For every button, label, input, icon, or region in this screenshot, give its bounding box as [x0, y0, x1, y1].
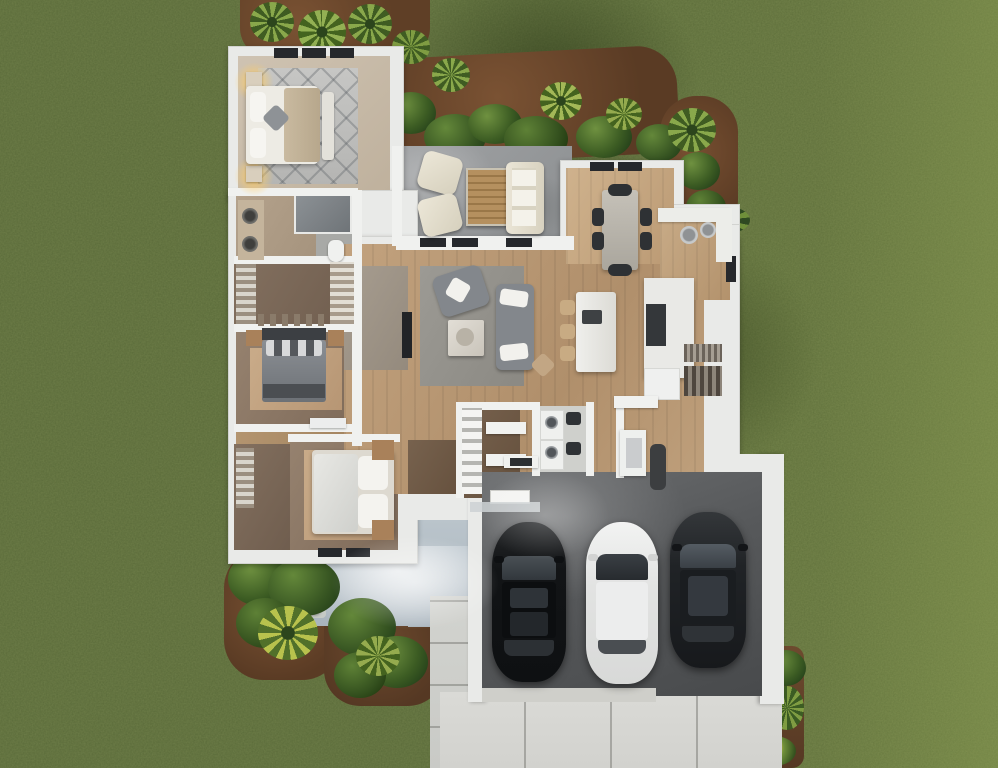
closet-rack: [236, 448, 254, 508]
window: [618, 162, 642, 171]
shelf: [486, 422, 526, 434]
window: [452, 238, 478, 247]
window: [420, 238, 446, 247]
car-gray-windshield: [680, 544, 736, 568]
dining-chair: [592, 232, 604, 250]
driveway: [440, 692, 782, 768]
washer-drum: [545, 416, 558, 429]
wine-rack: [684, 366, 722, 396]
mudroom-bench-pad: [626, 438, 642, 468]
car-mirror: [494, 556, 504, 563]
bedroom2-pillows: [266, 340, 322, 356]
nightstand: [372, 440, 394, 460]
bedroom2-headboard: [262, 328, 326, 340]
palm-plant: [606, 98, 642, 130]
window: [302, 48, 326, 58]
car-gray-rear-glass: [682, 626, 734, 642]
pillow: [358, 456, 388, 490]
mudroom-cabinet: [614, 396, 658, 408]
toilet: [328, 240, 344, 262]
bath-sink: [242, 208, 258, 224]
desk: [310, 418, 346, 428]
linen-shelves: [462, 408, 482, 494]
master-duvet: [284, 88, 320, 162]
laundry-basket: [566, 412, 581, 425]
island-sink: [582, 310, 602, 324]
car-white-rear-glass: [598, 640, 646, 654]
palm-plant: [250, 2, 294, 42]
floor-plan-rendering: [0, 0, 998, 768]
kitchen-island: [576, 292, 616, 372]
bar-stool: [560, 300, 575, 315]
window: [590, 162, 614, 171]
patio-wall-west: [392, 146, 402, 246]
pantry-bowl: [700, 222, 716, 238]
laundry-basket: [566, 442, 581, 455]
grass-light-right: [820, 0, 998, 768]
bath-sink: [242, 236, 258, 252]
palm-plant: [668, 108, 716, 152]
sunlight-haze: [330, 535, 500, 630]
car-mirror: [588, 554, 598, 561]
dining-chair: [640, 208, 652, 226]
shower: [294, 190, 352, 234]
water-heater: [650, 444, 666, 490]
window: [506, 238, 532, 247]
pantry-counter: [716, 208, 732, 262]
palm-plant: [432, 58, 470, 92]
shoe-shelf: [258, 314, 326, 326]
sunlight-haze: [480, 470, 610, 560]
nightstand: [328, 330, 344, 346]
palm-plant: [540, 82, 582, 120]
dining-chair: [640, 232, 652, 250]
nightstand: [246, 330, 262, 346]
car-mirror: [648, 554, 658, 561]
dining-table: [602, 190, 638, 270]
sofa-cushion: [499, 343, 529, 362]
garage-wall-right: [760, 454, 784, 704]
car-gray-sunroof: [688, 576, 728, 616]
tv-panel: [402, 312, 412, 358]
pillow: [250, 128, 266, 158]
window: [318, 548, 342, 557]
range-cooktop: [646, 304, 666, 346]
car-mirror: [738, 544, 748, 551]
bar-stool: [560, 346, 575, 361]
dining-chair: [592, 208, 604, 226]
garage-door-threshold: [482, 688, 656, 702]
closet-rack: [330, 262, 354, 324]
wall-partition: [586, 402, 594, 476]
window: [330, 48, 354, 58]
car-black-sunroof: [510, 588, 548, 608]
car-black-sunroof: [510, 612, 548, 636]
spice-rack: [684, 344, 722, 362]
pantry-bowl: [680, 226, 698, 244]
bedroom3-duvet: [314, 454, 358, 532]
car-mirror: [672, 544, 682, 551]
patio-sofa-cushions: [512, 168, 536, 226]
dining-chair: [608, 264, 632, 276]
window: [274, 48, 298, 58]
bar-stool: [560, 324, 575, 339]
entry-bench-pad: [510, 458, 532, 466]
bed-bench: [322, 92, 334, 160]
car-white-windshield: [596, 554, 648, 580]
car-white-roof: [596, 582, 648, 640]
dryer-drum: [545, 446, 558, 459]
closet-rack: [236, 264, 256, 324]
nightstand: [246, 166, 262, 182]
palm-plant: [258, 606, 318, 660]
coffee-table-tray: [456, 328, 474, 346]
patio-table: [466, 168, 510, 226]
dining-chair: [608, 184, 632, 196]
bedroom2-throw: [263, 384, 325, 398]
palm-plant: [356, 636, 400, 676]
palm-plant: [348, 4, 392, 44]
car-black-rear-glass: [504, 640, 554, 656]
